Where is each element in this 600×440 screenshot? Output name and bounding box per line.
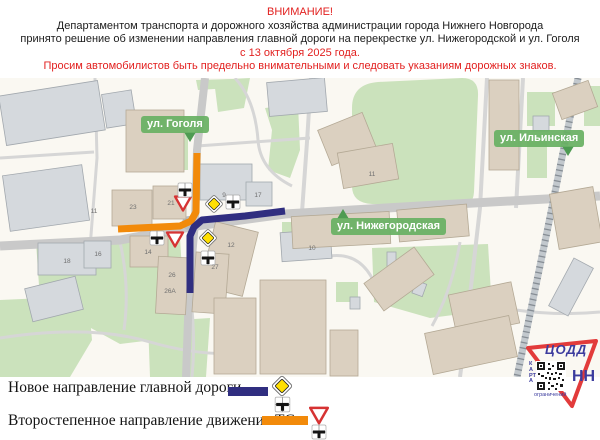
street-label-gogolya-pointer-icon	[184, 132, 196, 142]
legend-secondary-road-swatch	[262, 416, 308, 425]
attention-title: ВНИМАНИЕ!	[0, 6, 600, 20]
building-number: 17	[254, 192, 262, 199]
legend-secondary-road-label: Второстепенное направление движения ТС -	[8, 412, 304, 430]
building-number: 26А	[164, 288, 176, 295]
header-date-line: с 13 октября 2025 года.	[0, 47, 600, 61]
header-warning-line: Просим автомобилистов быть предельно вни…	[0, 60, 600, 74]
crossroads-plate-icon	[311, 424, 327, 440]
building-number: 14	[144, 249, 152, 256]
header-line-1: Департаментом транспорта и дорожного хоз…	[0, 20, 600, 34]
crossroads-plate-icon	[274, 396, 291, 413]
building-number: 10	[308, 245, 316, 252]
street-label-nizhegorodskaya: ул. Нижегородская	[331, 218, 446, 235]
legend-main-road-swatch	[228, 387, 268, 396]
crossroads-plate-icon	[226, 195, 240, 209]
codd-nn-logo: ЦОДД НН	[519, 332, 600, 418]
legend-main-road-label: Новое направление главной дороги -	[8, 379, 250, 397]
logo-org-name: ЦОДД	[545, 342, 587, 357]
building-number: 21	[167, 200, 175, 207]
road-change-announcement: { "header": { "attention": "ВНИМАНИЕ!", …	[0, 0, 600, 440]
logo-city-code: НН	[572, 368, 595, 386]
city-map: 1123219171118161412102626А27	[0, 78, 600, 377]
building-number: 11	[369, 171, 376, 178]
building-number: 27	[211, 264, 219, 271]
building-number: 16	[94, 251, 102, 258]
priority-road-sign-icon	[270, 374, 294, 398]
building-number: 9	[222, 192, 226, 199]
crossroads-plate-icon	[150, 231, 164, 245]
building-number: 23	[129, 204, 137, 211]
qr-side-caption: КАРТА	[529, 362, 536, 385]
building-number: 26	[168, 272, 176, 279]
street-label-ilyinskaya: ул. Ильинская	[494, 130, 584, 147]
qr-bottom-caption: ограничений	[534, 392, 566, 398]
crossroads-plate-icon	[178, 183, 192, 197]
building-number: 11	[91, 208, 98, 215]
header-line-2: принято решение об изменении направления…	[0, 33, 600, 47]
crossroads-plate-icon	[201, 251, 215, 265]
building-number: 12	[227, 242, 235, 249]
street-label-ilyinskaya-pointer-icon	[562, 146, 574, 156]
qr-code	[536, 361, 566, 391]
building-number: 18	[63, 258, 71, 265]
announcement-header: ВНИМАНИЕ! Департаментом транспорта и дор…	[0, 6, 600, 74]
street-label-gogolya: ул. Гоголя	[141, 116, 209, 133]
give-way-sign-icon	[309, 406, 329, 426]
